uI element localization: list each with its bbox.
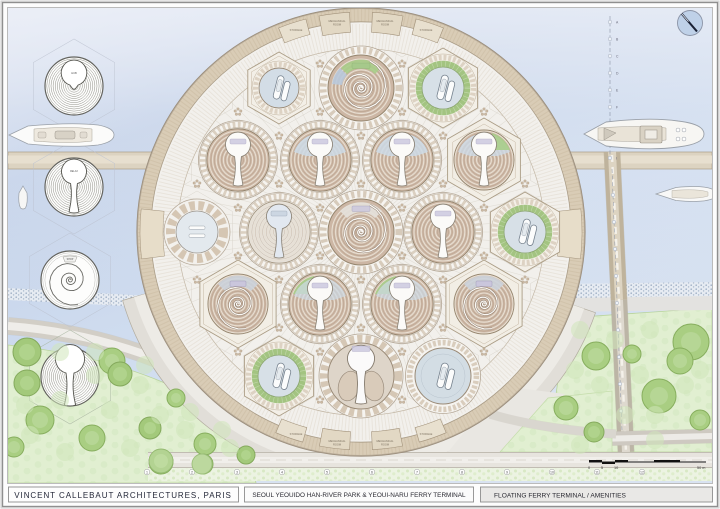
- svg-text:2: 2: [191, 471, 193, 475]
- svg-text:F: F: [616, 106, 618, 110]
- svg-text:I: I: [616, 157, 617, 161]
- svg-text:11: 11: [595, 471, 599, 475]
- svg-text:SHOP: SHOP: [67, 258, 74, 261]
- svg-text:10: 10: [614, 466, 618, 470]
- svg-text:ROOM: ROOM: [381, 442, 389, 446]
- svg-text:12: 12: [640, 471, 644, 475]
- svg-text:5: 5: [601, 466, 603, 470]
- svg-text:STORAGE: STORAGE: [420, 432, 433, 436]
- svg-text:MECHANICAL: MECHANICAL: [328, 439, 346, 443]
- svg-text:4: 4: [281, 471, 283, 475]
- svg-text:9: 9: [506, 471, 508, 475]
- svg-text:1: 1: [146, 471, 148, 475]
- svg-text:MECHANICAL: MECHANICAL: [376, 439, 394, 443]
- svg-text:6: 6: [371, 471, 373, 475]
- svg-text:0: 0: [588, 466, 590, 470]
- svg-text:50 m: 50 m: [697, 466, 705, 470]
- svg-text:3: 3: [236, 471, 238, 475]
- svg-text:ROOM: ROOM: [333, 442, 341, 446]
- svg-text:ROOM: ROOM: [333, 22, 341, 26]
- svg-text:STORAGE: STORAGE: [290, 28, 303, 32]
- svg-text:8: 8: [461, 471, 463, 475]
- svg-text:5: 5: [326, 471, 328, 475]
- svg-text:STORAGE: STORAGE: [290, 432, 303, 436]
- svg-text:SEOUL YEOUIDO HAN-RIVER PARK &: SEOUL YEOUIDO HAN-RIVER PARK & YEOUI-NAR…: [252, 492, 466, 499]
- svg-text:MECHANICAL: MECHANICAL: [376, 19, 394, 23]
- svg-text:10: 10: [550, 471, 554, 475]
- svg-text:RELAX: RELAX: [70, 170, 78, 173]
- svg-text:FLOATING FERRY TERMINAL / AMEN: FLOATING FERRY TERMINAL / AMENITIES: [494, 492, 627, 499]
- svg-text:ROOM: ROOM: [381, 22, 389, 26]
- svg-text:STORAGE: STORAGE: [420, 28, 433, 32]
- svg-text:VINCENT CALLEBAUT ARCHITECTURE: VINCENT CALLEBAUT ARCHITECTURES, PARIS: [14, 491, 231, 500]
- svg-text:MECHANICAL: MECHANICAL: [328, 19, 346, 23]
- svg-text:HUB: HUB: [71, 71, 77, 75]
- svg-text:7: 7: [416, 471, 418, 475]
